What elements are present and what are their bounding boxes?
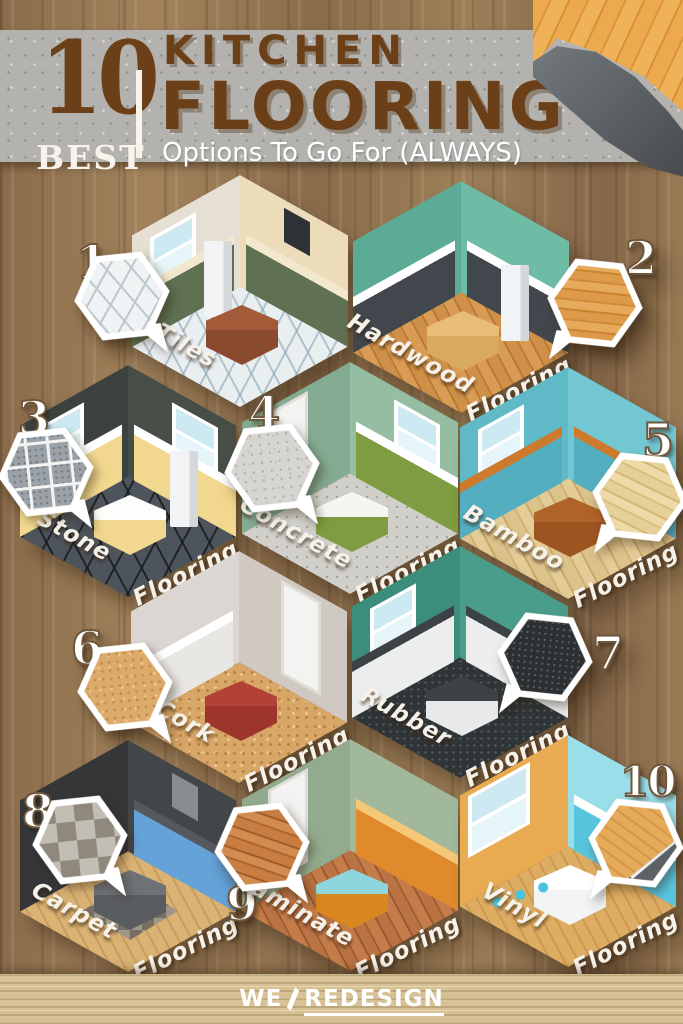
flooring-item-laminate: 9 Laminate Flooring: [242, 739, 458, 971]
flooring-swatch-bubble: [543, 253, 648, 353]
refrigerator: [501, 265, 529, 341]
flooring-swatch-bubble: [70, 246, 175, 346]
flooring-swatch-bubble: [220, 418, 325, 518]
infographic-poster: 10 BEST KITCHEN FLOORING Options To Go F…: [0, 0, 683, 1024]
refrigerator: [170, 451, 198, 527]
flooring-item-carpet: 8 Carpet Flooring: [20, 740, 236, 972]
refrigerator: [204, 241, 232, 317]
flooring-swatch-bubble: [584, 793, 683, 893]
item-number: 7: [592, 626, 624, 680]
flooring-swatch-bubble: [493, 607, 598, 707]
footer-band: WEREDESIGN: [0, 974, 683, 1024]
brand-we: WE: [239, 986, 282, 1012]
title-flooring: FLOORING: [160, 68, 566, 145]
brand-redesign: REDESIGN: [304, 986, 443, 1016]
flooring-swatch-bubble: [210, 797, 315, 897]
brand-logo: WEREDESIGN: [0, 986, 683, 1012]
flooring-swatch-bubble: [588, 447, 683, 547]
brush-icon: [287, 986, 300, 1011]
subtitle: Options To Go For (ALWAYS): [162, 138, 522, 168]
flooring-swatch-bubble: [73, 637, 178, 737]
count-label: BEST: [36, 138, 146, 177]
page-curl: [533, 0, 683, 192]
header-divider: [136, 70, 142, 158]
flooring-swatch-bubble: [0, 422, 98, 522]
flooring-item-vinyl: 10 Vinyl Flooring: [460, 735, 676, 967]
flooring-swatch-bubble: [28, 790, 133, 890]
